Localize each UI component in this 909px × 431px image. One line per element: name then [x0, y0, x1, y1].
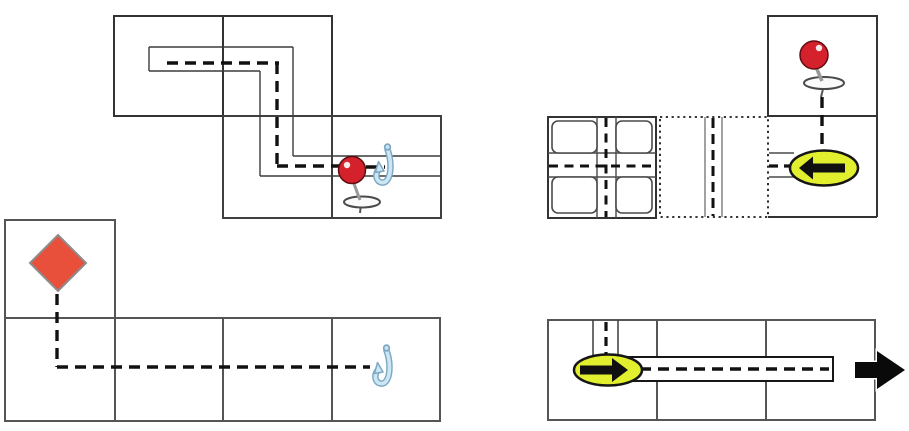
grid-cell [114, 16, 223, 116]
hook-eye-icon [384, 345, 390, 351]
pin-base [344, 197, 380, 208]
exit-arrow-icon [855, 351, 905, 389]
diagram-svg [0, 0, 909, 431]
corner-block [616, 177, 652, 213]
hook-eye-icon [385, 144, 391, 150]
pin-highlight [816, 45, 822, 51]
panel-bottom-right-road-exit [548, 320, 905, 420]
hook-barb-icon [375, 363, 384, 374]
grid-cell [332, 318, 440, 421]
pin-head [339, 157, 366, 184]
route-puzzles-figure [0, 0, 909, 431]
hook-barb-icon [376, 162, 385, 173]
pin-highlight [344, 162, 350, 168]
corner-block [552, 121, 597, 153]
grid-cell [115, 318, 223, 421]
figure-page: { "canvas": {"width": 909, "height": 431… [0, 0, 909, 431]
panel-bottom-left-diamond-route [5, 220, 440, 421]
pin-base [804, 77, 844, 89]
diamond-marker [30, 235, 86, 291]
corner-block [616, 121, 652, 153]
corner-block [552, 177, 597, 213]
panel-top-left-route-pin-hook [114, 16, 441, 218]
panel-top-right-crossroad-route [548, 16, 877, 218]
grid-cell [5, 318, 115, 421]
grid-cell [223, 318, 332, 421]
pin-tip [821, 89, 823, 97]
pin-head [800, 41, 828, 69]
